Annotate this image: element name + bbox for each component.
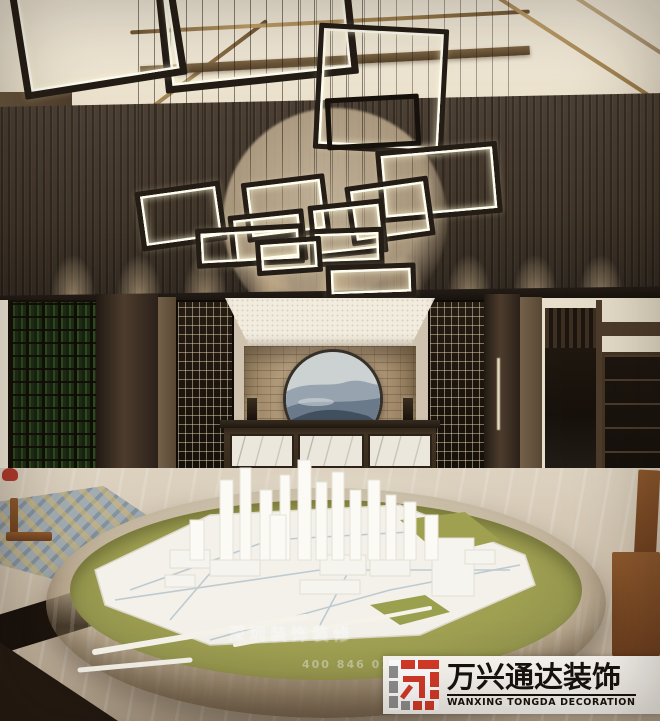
- header-beam: [598, 322, 660, 336]
- ring-chandelier-unlit: [325, 94, 422, 151]
- brand-text-block: 万兴通达装饰 WANXING TONGDA DECORATION: [447, 663, 636, 708]
- watermark-text: 深圳装饰装修: [228, 620, 354, 645]
- ring-chandelier: [255, 236, 323, 277]
- brand-name-en: WANXING TONGDA DECORATION: [447, 694, 636, 708]
- lobby-interior-photo: 深圳装饰装修 400 846 0163 万兴通达装饰 WANXING TONGD…: [0, 0, 660, 721]
- armchair-right-back: [634, 469, 660, 562]
- armchair-right: [612, 552, 660, 656]
- counter-lamp-left: [247, 398, 257, 422]
- brand-logo-glyph: [389, 660, 439, 710]
- counter-lamp-right: [403, 398, 413, 422]
- corridor-slats: [545, 308, 601, 348]
- ring-chandelier: [325, 262, 416, 299]
- flower-decor: [2, 468, 18, 481]
- brand-logo-icon: [389, 660, 439, 710]
- brand-watermark-badge: 万兴通达装饰 WANXING TONGDA DECORATION: [383, 656, 660, 714]
- armchair-left-seat: [6, 532, 52, 541]
- brand-name-cn: 万兴通达装饰: [447, 663, 636, 692]
- marble-canopy: [225, 298, 435, 348]
